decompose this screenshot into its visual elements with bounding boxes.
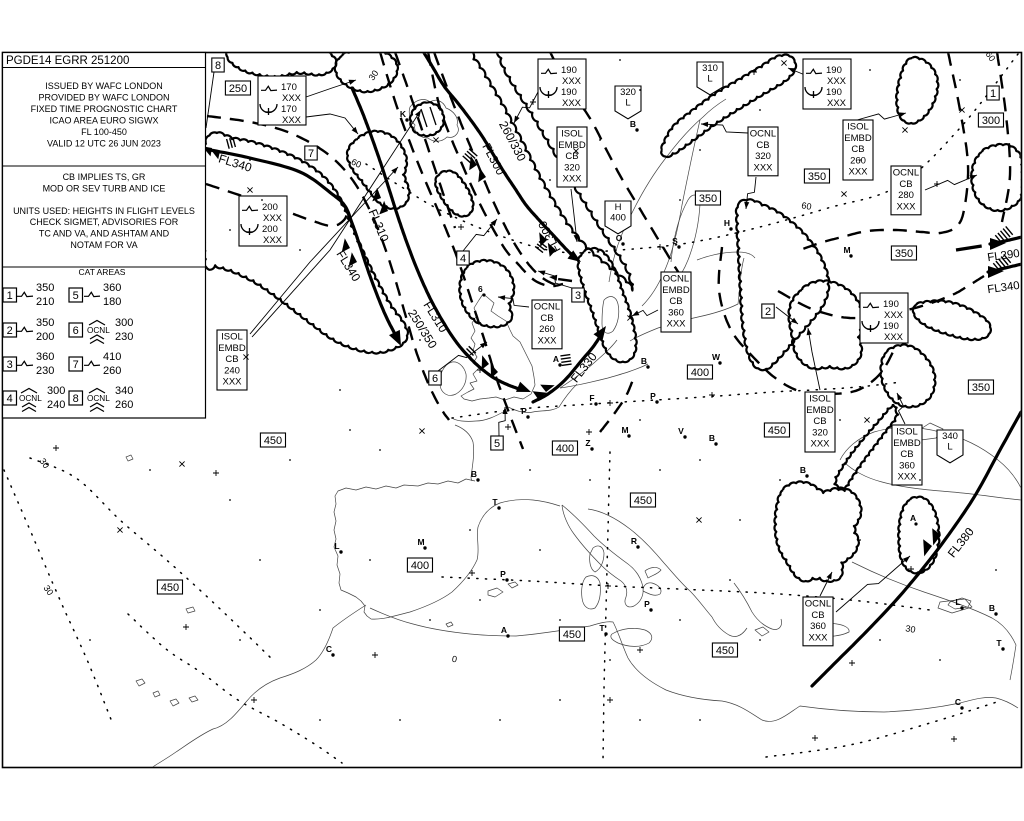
svg-text:1: 1 (990, 88, 996, 100)
svg-text:OCNL: OCNL (663, 274, 689, 285)
svg-text:450: 450 (563, 629, 581, 641)
svg-text:240: 240 (224, 365, 240, 376)
svg-text:8: 8 (215, 60, 221, 72)
svg-text:300: 300 (47, 385, 65, 397)
svg-text:R: R (631, 536, 637, 546)
svg-text:450: 450 (264, 435, 282, 447)
svg-text:1: 1 (7, 290, 13, 302)
svg-text:7: 7 (73, 359, 79, 371)
svg-text:190: 190 (883, 299, 899, 310)
svg-text:ISSUED BY WAFC LONDON: ISSUED BY WAFC LONDON (45, 81, 163, 91)
svg-text:XXX: XXX (848, 167, 868, 178)
svg-text:XXX: XXX (263, 213, 283, 224)
svg-text:A: A (910, 513, 916, 523)
svg-text:400: 400 (411, 560, 429, 572)
svg-text:P: P (644, 599, 650, 609)
svg-text:350: 350 (36, 317, 54, 329)
svg-text:PGDE14 EGRR 251200: PGDE14 EGRR 251200 (6, 55, 129, 67)
svg-text:8: 8 (73, 393, 79, 405)
svg-text:L: L (625, 97, 630, 108)
svg-text:320: 320 (812, 427, 828, 438)
svg-text:400: 400 (556, 443, 574, 455)
svg-text:L: L (947, 441, 952, 452)
svg-text:OCNL: OCNL (805, 599, 831, 610)
svg-text:350: 350 (699, 193, 717, 205)
svg-text:320: 320 (564, 162, 580, 173)
svg-text:280: 280 (898, 190, 914, 201)
svg-text:350: 350 (808, 171, 826, 183)
svg-text:360: 360 (899, 460, 915, 471)
svg-text:OCNL: OCNL (19, 394, 42, 403)
svg-text:190: 190 (826, 87, 842, 98)
svg-text:360: 360 (668, 307, 684, 318)
svg-text:230: 230 (36, 365, 54, 377)
svg-text:T: T (599, 623, 605, 633)
svg-text:T: T (492, 497, 498, 507)
svg-text:ICAO AREA EURO SIGWX: ICAO AREA EURO SIGWX (49, 116, 158, 126)
svg-text:340: 340 (942, 431, 958, 442)
svg-text:XXX: XXX (537, 335, 557, 346)
svg-text:5: 5 (73, 290, 79, 302)
svg-text:C: C (326, 644, 332, 654)
svg-text:P: P (650, 391, 656, 401)
svg-text:C: C (955, 697, 961, 707)
svg-text:260: 260 (850, 155, 866, 166)
svg-text:450: 450 (768, 425, 786, 437)
svg-text:4: 4 (460, 253, 466, 265)
svg-text:CB: CB (669, 296, 682, 307)
svg-text:3: 3 (7, 359, 13, 371)
svg-text:EMBD: EMBD (844, 133, 872, 144)
svg-text:CHECK SIGMET, ADVISORIES FOR: CHECK SIGMET, ADVISORIES FOR (30, 217, 179, 227)
svg-text:O: O (616, 233, 623, 243)
svg-text:190: 190 (561, 87, 577, 98)
svg-text:F: F (589, 393, 594, 403)
svg-text:EMBD: EMBD (893, 438, 921, 449)
svg-text:XXX: XXX (808, 632, 828, 643)
svg-text:CB: CB (565, 151, 578, 162)
svg-text:200: 200 (262, 202, 278, 213)
svg-text:XXX: XXX (562, 76, 582, 87)
svg-text:P: P (500, 569, 506, 579)
svg-text:CB: CB (851, 144, 864, 155)
svg-text:190: 190 (883, 321, 899, 332)
svg-text:170: 170 (281, 104, 297, 115)
svg-text:450: 450 (716, 645, 734, 657)
svg-text:L: L (707, 73, 712, 84)
svg-text:7: 7 (308, 148, 314, 160)
svg-text:200: 200 (36, 331, 54, 343)
svg-text:XXX: XXX (222, 377, 242, 388)
svg-text:CB: CB (540, 313, 553, 324)
svg-text:240: 240 (47, 399, 65, 411)
svg-text:300: 300 (982, 115, 1000, 127)
svg-text:CAT AREAS: CAT AREAS (79, 267, 126, 277)
svg-text:XXX: XXX (666, 319, 686, 330)
svg-text:XXX: XXX (753, 162, 773, 173)
svg-text:360: 360 (103, 282, 121, 294)
svg-text:V: V (678, 426, 684, 436)
svg-text:P: P (521, 406, 527, 416)
svg-text:L: L (334, 541, 339, 551)
svg-text:H: H (724, 218, 730, 228)
svg-text:OCNL: OCNL (534, 302, 560, 313)
svg-text:XXX: XXX (896, 201, 916, 212)
svg-text:ISOL: ISOL (809, 394, 831, 405)
svg-text:FIXED TIME PROGNOSTIC CHART: FIXED TIME PROGNOSTIC CHART (31, 104, 178, 114)
svg-text:OCNL: OCNL (893, 168, 919, 179)
svg-text:B: B (989, 603, 995, 613)
svg-text:XXX: XXX (562, 174, 582, 185)
svg-text:MOD OR SEV TURB AND ICE: MOD OR SEV TURB AND ICE (43, 183, 166, 193)
svg-text:260: 260 (539, 324, 555, 335)
svg-text:M: M (843, 245, 850, 255)
svg-text:ISOL: ISOL (896, 427, 918, 438)
svg-text:T: T (996, 638, 1002, 648)
svg-text:XXX: XXX (263, 235, 283, 246)
svg-text:260: 260 (115, 399, 133, 411)
svg-text:EMBD: EMBD (662, 285, 690, 296)
svg-text:360: 360 (810, 621, 826, 632)
svg-text:W: W (712, 352, 721, 362)
svg-text:EMBD: EMBD (558, 140, 586, 151)
svg-text:410: 410 (103, 351, 121, 363)
svg-text:180: 180 (103, 296, 121, 308)
svg-text:230: 230 (115, 331, 133, 343)
svg-text:L: L (955, 597, 960, 607)
svg-text:ISOL: ISOL (847, 122, 869, 133)
svg-text:OCNL: OCNL (87, 326, 110, 335)
svg-text:450: 450 (161, 582, 179, 594)
svg-text:310: 310 (702, 63, 718, 74)
svg-text:200: 200 (262, 224, 278, 235)
svg-text:EMBD: EMBD (218, 343, 246, 354)
svg-text:320: 320 (620, 87, 636, 98)
svg-text:360: 360 (36, 351, 54, 363)
svg-text:EMBD: EMBD (806, 405, 834, 416)
svg-text:ISOL: ISOL (561, 129, 583, 140)
svg-text:XXX: XXX (282, 115, 302, 126)
svg-text:B: B (800, 465, 806, 475)
svg-text:350: 350 (972, 382, 990, 394)
svg-text:4: 4 (7, 393, 13, 405)
svg-text:XXX: XXX (562, 98, 582, 109)
svg-text:340: 340 (115, 385, 133, 397)
svg-text:A: A (501, 625, 507, 635)
svg-text:M: M (417, 537, 424, 547)
svg-text:XXX: XXX (884, 332, 904, 343)
svg-text:B: B (641, 356, 647, 366)
svg-text:350: 350 (895, 248, 913, 260)
svg-text:CB: CB (899, 179, 912, 190)
svg-text:CB: CB (811, 610, 824, 621)
svg-text:OCNL: OCNL (87, 394, 110, 403)
svg-text:6: 6 (478, 284, 483, 294)
svg-text:30: 30 (905, 623, 917, 635)
svg-text:B: B (709, 433, 715, 443)
svg-text:3: 3 (575, 290, 581, 302)
svg-text:2: 2 (765, 306, 771, 318)
svg-text:170: 170 (281, 82, 297, 93)
svg-text:NOTAM FOR VA: NOTAM FOR VA (70, 240, 137, 250)
svg-text:Z: Z (585, 438, 590, 448)
svg-text:CB: CB (225, 354, 238, 365)
svg-text:OCNL: OCNL (750, 129, 776, 140)
svg-text:VALID 12 UTC 26 JUN 2023: VALID 12 UTC 26 JUN 2023 (47, 139, 161, 149)
svg-text:XXX: XXX (827, 98, 847, 109)
svg-text:K: K (400, 109, 407, 119)
svg-text:XXX: XXX (282, 93, 302, 104)
svg-text:B: B (630, 119, 636, 129)
svg-text:350: 350 (36, 282, 54, 294)
svg-text:6: 6 (73, 325, 79, 337)
svg-text:UNITS USED: HEIGHTS IN FLIGHT: UNITS USED: HEIGHTS IN FLIGHT LEVELS (13, 206, 195, 216)
svg-text:XXX: XXX (884, 310, 904, 321)
svg-text:5: 5 (494, 438, 500, 450)
svg-text:CB: CB (900, 449, 913, 460)
svg-text:M: M (621, 425, 628, 435)
svg-text:260: 260 (103, 365, 121, 377)
svg-text:300: 300 (115, 317, 133, 329)
svg-text:B: B (471, 469, 477, 479)
svg-text:400: 400 (691, 367, 709, 379)
svg-text:2: 2 (7, 325, 13, 337)
svg-text:320: 320 (755, 151, 771, 162)
svg-text:400: 400 (610, 212, 626, 223)
svg-text:250: 250 (229, 83, 247, 95)
svg-text:190: 190 (561, 65, 577, 76)
svg-text:XXX: XXX (897, 472, 917, 483)
svg-text:A: A (553, 354, 559, 364)
svg-text:PROVIDED BY WAFC LONDON: PROVIDED BY WAFC LONDON (38, 93, 169, 103)
svg-text:210: 210 (36, 296, 54, 308)
svg-text:S: S (672, 236, 678, 246)
svg-text:60: 60 (801, 200, 813, 212)
svg-text:FL 100-450: FL 100-450 (81, 127, 127, 137)
svg-text:ISOL: ISOL (221, 332, 243, 343)
svg-text:XXX: XXX (810, 439, 830, 450)
svg-text:190: 190 (826, 65, 842, 76)
svg-text:TC AND VA, AND ASHTAM AND: TC AND VA, AND ASHTAM AND (39, 229, 170, 239)
svg-text:XXX: XXX (827, 76, 847, 87)
svg-text:6: 6 (432, 373, 438, 385)
svg-text:H: H (615, 202, 622, 213)
svg-text:CB: CB (813, 416, 826, 427)
svg-text:CB: CB (756, 140, 769, 151)
svg-text:CB IMPLIES TS, GR: CB IMPLIES TS, GR (63, 172, 146, 182)
svg-text:450: 450 (634, 495, 652, 507)
